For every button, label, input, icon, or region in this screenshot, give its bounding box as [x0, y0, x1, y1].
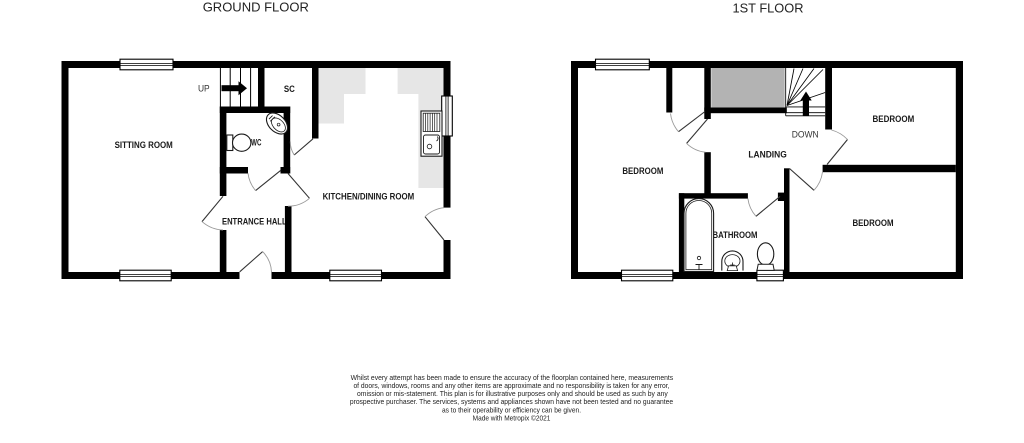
svg-text:BEDROOM: BEDROOM: [622, 166, 663, 177]
svg-text:LANDING: LANDING: [748, 150, 786, 161]
svg-text:SITTING ROOM: SITTING ROOM: [115, 140, 173, 151]
svg-text:1ST FLOOR: 1ST FLOOR: [733, 1, 804, 16]
svg-text:GROUND FLOOR: GROUND FLOOR: [203, 0, 309, 15]
svg-text:BATHROOM: BATHROOM: [713, 230, 758, 241]
svg-text:KITCHEN/DINING ROOM: KITCHEN/DINING ROOM: [323, 191, 415, 202]
svg-text:WC: WC: [251, 138, 261, 149]
svg-text:UP: UP: [198, 83, 210, 93]
svg-text:SC: SC: [284, 84, 295, 95]
svg-text:Made with Metropix ©2021: Made with Metropix ©2021: [473, 413, 551, 422]
svg-text:BEDROOM: BEDROOM: [873, 114, 915, 125]
svg-text:ENTRANCE HALL: ENTRANCE HALL: [222, 217, 287, 228]
svg-text:DOWN: DOWN: [792, 129, 819, 139]
svg-text:BEDROOM: BEDROOM: [853, 218, 894, 229]
